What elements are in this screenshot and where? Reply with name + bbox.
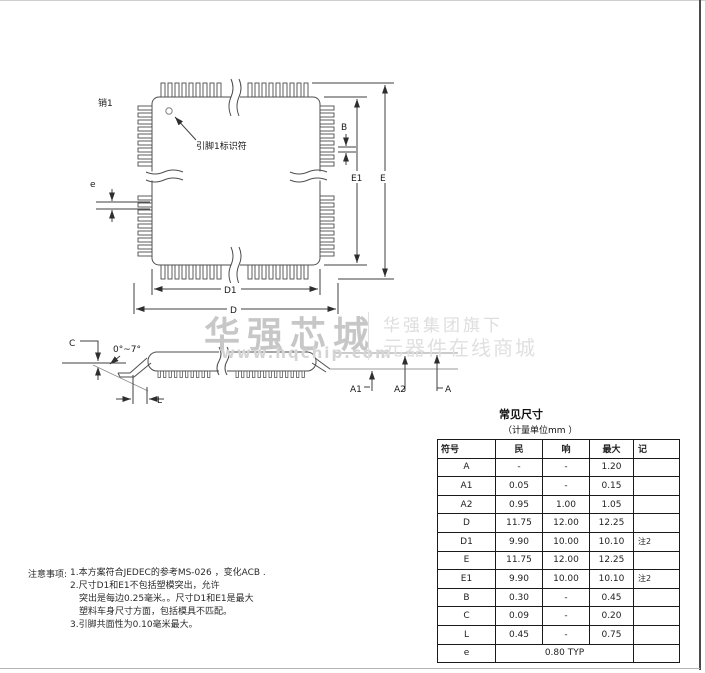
dim-value-cell: 10.00 [543,532,590,551]
dim-label-C: C [69,339,75,349]
notes-lines: 1.本方案符合JEDEC的参考MS-026 ，变化ACB .2.尺寸D1和E1不… [70,567,266,632]
notes-block: 注意事项: 1.本方案符合JEDEC的参考MS-026 ，变化ACB .2.尺寸… [28,567,266,632]
table-row: E11.7512.0012.25 [438,551,680,570]
page-bottom-border [0,668,700,669]
table-row: D11.7512.0012.25 [438,514,680,533]
dim-symbol-cell: D [438,514,496,533]
note-line: 塑料车身尺寸方面，包括模具不匹配。 [70,606,266,619]
dim-label-A: A [445,385,452,395]
dim-value-cell: 1.20 [590,458,634,477]
dim-value-cell: - [543,588,590,607]
dim-label-A2: A2 [394,385,406,395]
dim-note-cell [634,644,680,663]
dim-value-cell: 0.20 [590,607,634,626]
table-row-span: e0.80 TYP [438,644,680,663]
note-line: 突出是每边0.25毫米。。尺寸D1和E1是最大 [70,593,266,606]
dim-value-cell: 12.00 [543,551,590,570]
side-pins-left-group [158,371,210,378]
pins-right [320,106,334,256]
dim-symbol-cell: E1 [438,570,496,589]
dim-value-cell: 0.30 [496,588,543,607]
dim-note-cell [634,477,680,496]
side-view: C 0°~7° L A1 A2 A [62,339,458,406]
dimension-table-block: 常见尺寸 （计量单位mm ） 符号 民 响 最大 记 A--1.20A10.05… [437,406,680,663]
col-header-max: 最大 [590,440,634,459]
dim-span-value-cell: 0.80 TYP [496,644,634,663]
dim-table-body: A--1.20A10.05-0.15A20.951.001.05D11.7512… [438,458,680,663]
dim-symbol-cell: e [438,644,496,663]
table-header-row: 符号 民 响 最大 记 [438,440,680,459]
table-row: A--1.20 [438,458,680,477]
dim-symbol-cell: E [438,551,496,570]
dim-value-cell: 0.15 [590,477,634,496]
table-row: L0.45-0.75 [438,625,680,644]
dim-value-cell: 0.45 [590,588,634,607]
dim-note-cell [634,607,680,626]
dim-label-E: E [380,174,386,184]
note-line: 3.引脚共面性为0.10毫米最大。 [70,619,266,632]
col-header-symbol: 符号 [438,440,496,459]
dim-value-cell: 0.95 [496,495,543,514]
dim-value-cell: 11.75 [496,514,543,533]
dim-note-cell [634,495,680,514]
dim-value-cell: 12.00 [543,514,590,533]
dim-note-cell: 注2 [634,532,680,551]
side-pins-right-group [236,371,304,378]
col-header-nom: 响 [543,440,590,459]
dim-note-cell [634,625,680,644]
pin1-identifier-label: 引脚1标识符 [196,140,247,152]
dim-value-cell: 1.00 [543,495,590,514]
dim-value-cell: 10.10 [590,532,634,551]
dim-label-angle: 0°~7° [113,345,141,355]
dim-value-cell: 0.05 [496,477,543,496]
dim-value-cell: - [543,458,590,477]
note-line: 2.尺寸D1和E1不包括塑模突出，允许 [70,580,266,593]
col-header-min: 民 [496,440,543,459]
table-row: A20.951.001.05 [438,495,680,514]
package-body [152,97,320,265]
dim-note-cell [634,551,680,570]
dim-value-cell: 12.25 [590,551,634,570]
table-row: E19.9010.0010.10注2 [438,570,680,589]
dim-note-cell: 注2 [634,570,680,589]
dim-value-cell: 0.09 [496,607,543,626]
dim-value-cell: 1.05 [590,495,634,514]
col-header-note: 记 [634,440,680,459]
dim-label-L: L [157,396,162,406]
dim-value-cell: 11.75 [496,551,543,570]
table-unit-note: （计量单位mm ） [503,423,680,436]
package-outline-drawing: 销1 引脚1标识符 [0,0,705,430]
top-view: 销1 引脚1标识符 [90,79,394,316]
dim-note-cell [634,588,680,607]
side-body [148,352,316,371]
notes-label: 注意事项: [28,567,70,632]
dim-label-B: B [341,123,347,133]
dim-symbol-cell: A2 [438,495,496,514]
dim-symbol-cell: A1 [438,477,496,496]
dim-value-cell: 9.90 [496,570,543,589]
table-row: D19.9010.0010.10注2 [438,532,680,551]
dim-label-e: e [90,180,96,190]
dim-symbol-cell: A [438,458,496,477]
dim-note-cell [634,514,680,533]
table-row: B0.30-0.45 [438,588,680,607]
dim-label-E1: E1 [351,174,362,184]
dimension-table: 符号 民 响 最大 记 A--1.20A10.05-0.15A20.951.00… [437,439,680,663]
table-row: C0.09-0.20 [438,607,680,626]
dim-label-A1: A1 [350,385,362,395]
dim-value-cell: - [543,625,590,644]
table-row: A10.05-0.15 [438,477,680,496]
dim-value-cell: 0.45 [496,625,543,644]
dim-note-cell [634,458,680,477]
dim-symbol-cell: L [438,625,496,644]
dim-value-cell: 12.25 [590,514,634,533]
dim-value-cell: 9.90 [496,532,543,551]
dim-symbol-cell: C [438,607,496,626]
dim-value-cell: - [543,607,590,626]
dim-value-cell: - [543,477,590,496]
dim-value-cell: 10.10 [590,570,634,589]
datasheet-page: 华强芯城 www.hqchip.com 华强集团旗下 元器件在线商城 [0,0,705,673]
left-lead [118,358,151,377]
table-title: 常见尺寸 [499,406,680,422]
dim-value-cell: 0.75 [590,625,634,644]
dim-value-cell: 10.00 [543,570,590,589]
dim-value-cell: - [496,458,543,477]
note-line: 1.本方案符合JEDEC的参考MS-026 ，变化ACB . [70,567,266,580]
right-lead-and-planes [312,353,458,372]
dim-label-D1: D1 [224,286,237,296]
dim-label-D: D [230,306,237,316]
dim-symbol-cell: D1 [438,532,496,551]
pin1-label: 销1 [98,97,113,109]
dim-symbol-cell: B [438,588,496,607]
pin1-marker [166,108,172,114]
